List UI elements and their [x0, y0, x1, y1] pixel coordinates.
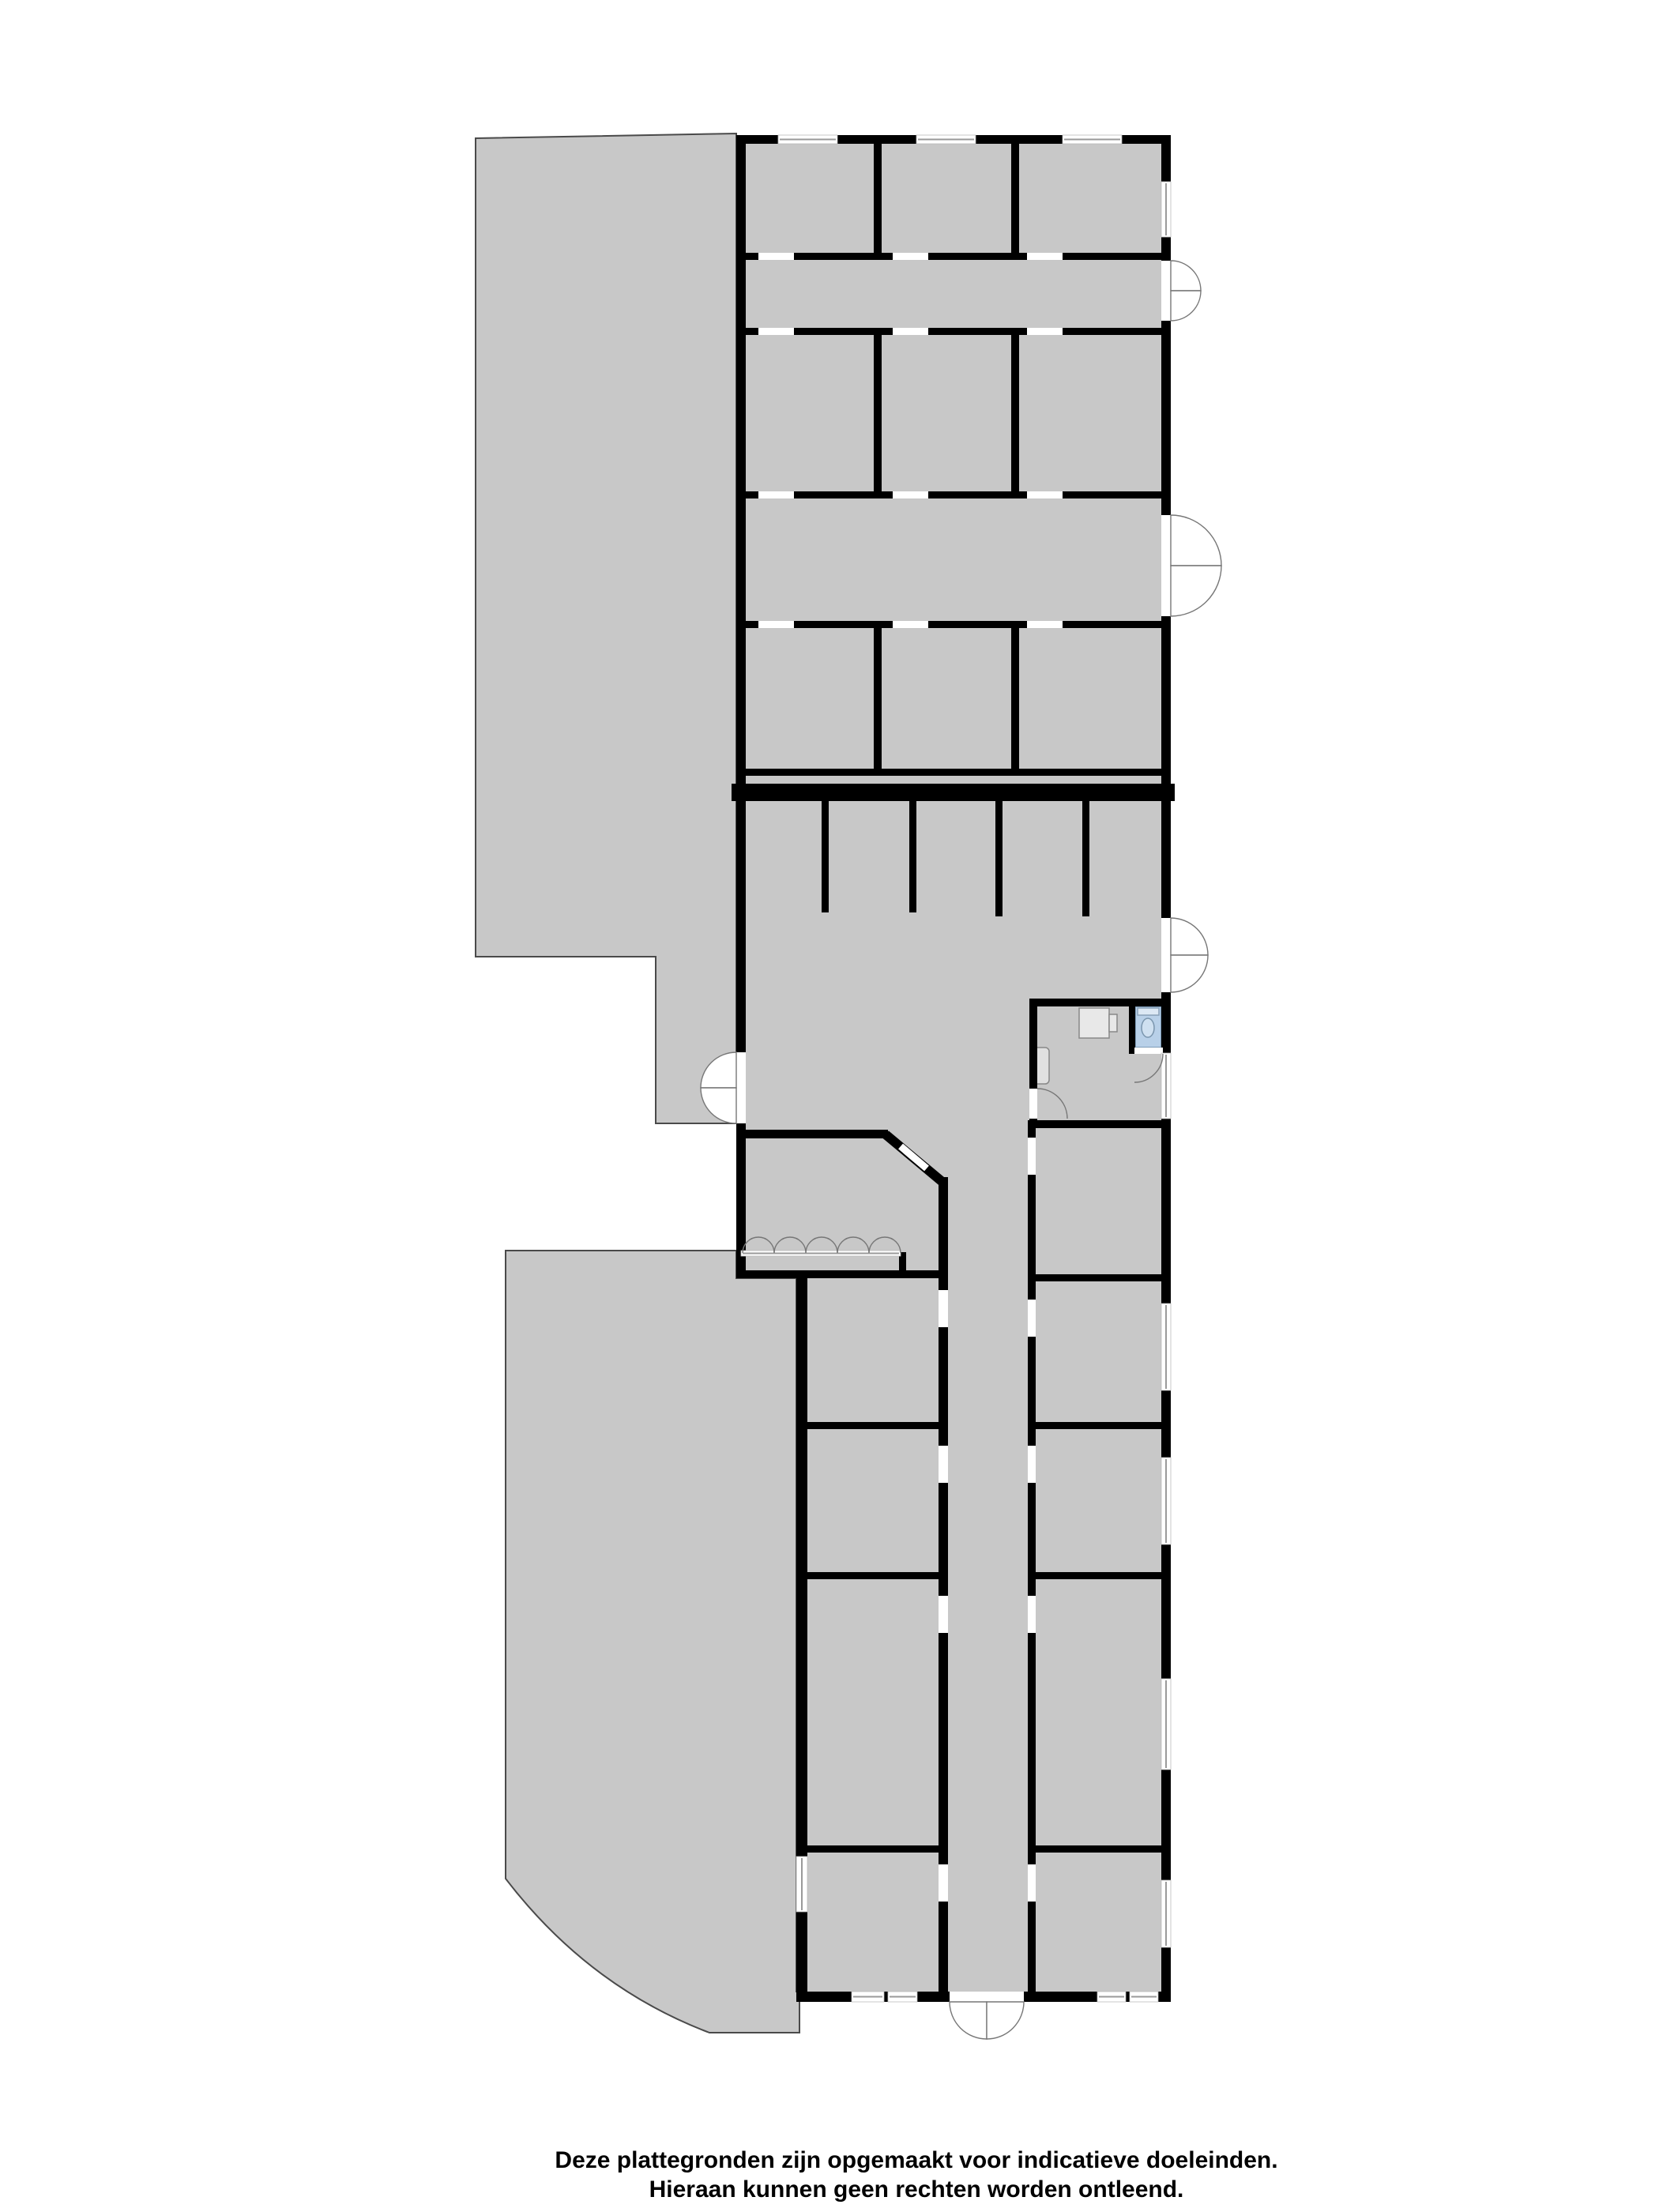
door-swing-arc — [1171, 566, 1221, 616]
door-opening — [893, 491, 928, 498]
region-overkapping — [506, 1251, 799, 2033]
door-opening — [1027, 491, 1063, 498]
door-opening — [758, 621, 794, 628]
door-opening — [939, 1290, 948, 1327]
wall — [1028, 1845, 1171, 1853]
door-swing-arc — [1171, 261, 1201, 291]
door-opening — [1028, 1596, 1036, 1633]
door-opening — [1028, 1300, 1036, 1337]
door-opening — [1027, 621, 1063, 628]
door-opening — [736, 1052, 746, 1123]
wall — [909, 790, 916, 912]
wall — [736, 491, 1170, 498]
door-opening — [939, 1864, 948, 1902]
door-opening — [893, 253, 928, 260]
wall — [822, 790, 829, 912]
wall — [1028, 1572, 1171, 1579]
wall — [874, 621, 882, 776]
regions-layer — [476, 134, 1171, 2033]
door-opening — [950, 1992, 1024, 2002]
wall — [736, 1270, 946, 1278]
door-opening — [893, 621, 928, 628]
door-opening — [1027, 253, 1063, 260]
door-swing-arc — [950, 2002, 987, 2039]
wall — [995, 790, 1003, 916]
disclaimer: Deze plattegronden zijn opgemaakt voor i… — [87, 2146, 1659, 2204]
washing-machine — [1079, 1008, 1109, 1038]
door-opening — [1028, 1864, 1036, 1902]
wall — [1028, 1422, 1171, 1429]
door-opening — [1028, 1138, 1036, 1175]
door-opening — [939, 1446, 948, 1483]
door-opening — [758, 328, 794, 335]
door-opening — [1161, 261, 1171, 321]
door-opening — [939, 1596, 948, 1633]
wall — [796, 1572, 948, 1579]
door-opening — [1161, 918, 1171, 992]
door-swing-arc — [1171, 291, 1201, 321]
wall — [1011, 135, 1019, 260]
door-opening — [1028, 1446, 1036, 1483]
door-opening — [758, 491, 794, 498]
region-yard-upper — [476, 134, 736, 1123]
toilet-tank — [1138, 1008, 1159, 1015]
wall — [736, 769, 1170, 776]
floorplan-page: Deze plattegronden zijn opgemaakt voor i… — [0, 0, 1659, 2212]
door-opening — [1029, 1089, 1037, 1119]
wall — [1011, 328, 1019, 498]
disclaimer-line2: Hieraan kunnen geen rechten worden ontle… — [87, 2175, 1659, 2204]
floor-plan — [0, 0, 1659, 2212]
wall — [1082, 790, 1089, 916]
door-swing-arc — [987, 2002, 1024, 2039]
toilet-bowl — [1142, 1018, 1154, 1037]
door-swing-arc — [1171, 955, 1208, 992]
wall — [736, 1130, 888, 1138]
wall — [1029, 999, 1170, 1006]
door-swing-arc — [1171, 515, 1221, 566]
door-opening — [893, 328, 928, 335]
door-opening — [758, 253, 794, 260]
wall — [874, 135, 882, 260]
wall — [796, 1422, 948, 1429]
wall — [732, 784, 1175, 801]
wall — [1129, 999, 1135, 1054]
wall — [1011, 621, 1019, 776]
wall — [1028, 1274, 1171, 1281]
washing-machine-tab — [1109, 1014, 1117, 1032]
wall — [796, 1845, 948, 1853]
door-opening — [1027, 328, 1063, 335]
wall — [736, 621, 1170, 628]
wall — [736, 328, 1170, 335]
door-swing-arc — [1171, 918, 1208, 955]
wall — [1029, 1120, 1170, 1128]
wall — [736, 253, 1170, 260]
disclaimer-line1: Deze plattegronden zijn opgemaakt voor i… — [87, 2146, 1659, 2175]
wall — [874, 328, 882, 498]
door-opening — [1161, 515, 1171, 616]
door-opening — [1134, 1048, 1163, 1054]
